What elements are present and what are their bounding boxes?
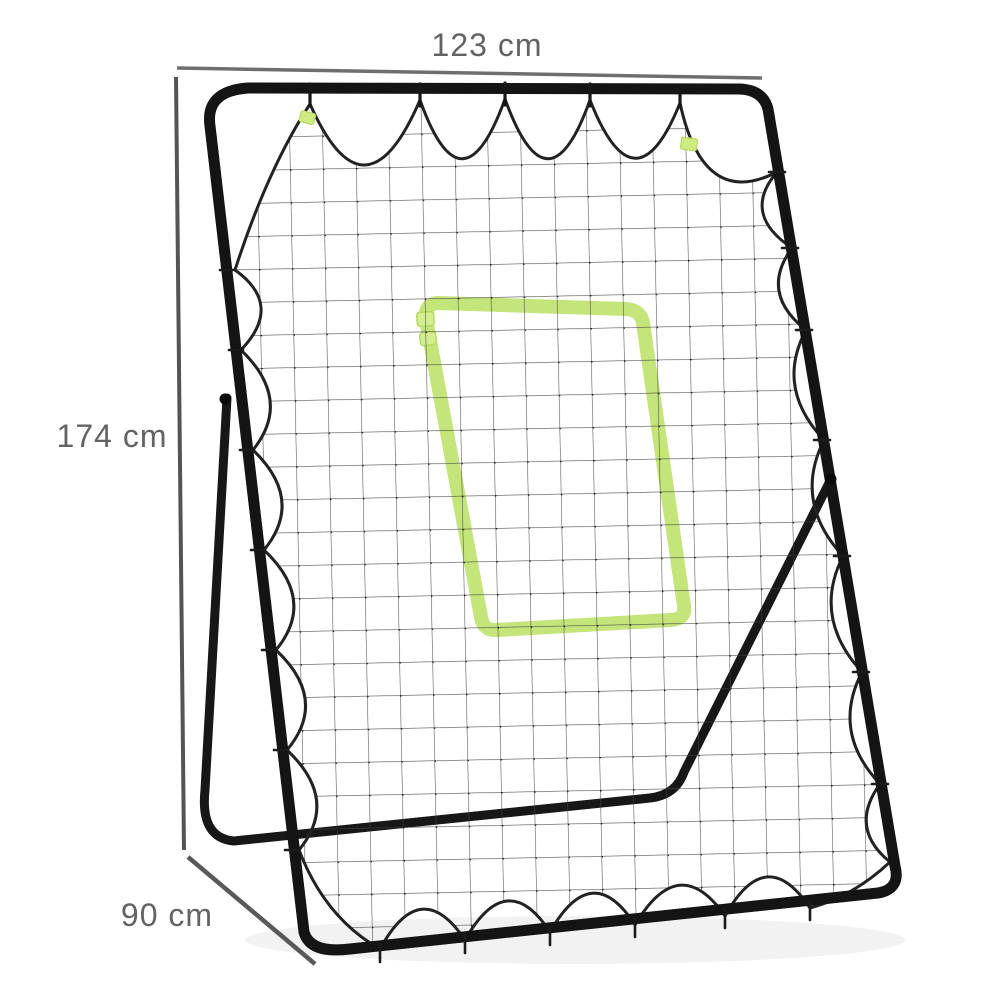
product-image-canvas: 123 cm 174 cm 90 cm bbox=[0, 0, 1000, 1000]
rebounder-diagram: 123 cm 174 cm 90 cm bbox=[0, 0, 1000, 1000]
height-dimension-line bbox=[176, 77, 184, 850]
height-dimension-label: 174 cm bbox=[57, 418, 168, 454]
width-dimension-line bbox=[177, 68, 762, 78]
width-dimension-label: 123 cm bbox=[432, 27, 543, 63]
depth-dimension-label: 90 cm bbox=[121, 897, 213, 933]
net-green-tab bbox=[680, 137, 698, 151]
hinge-bolt-left bbox=[220, 394, 231, 405]
hinge-bolt-right bbox=[826, 474, 837, 485]
